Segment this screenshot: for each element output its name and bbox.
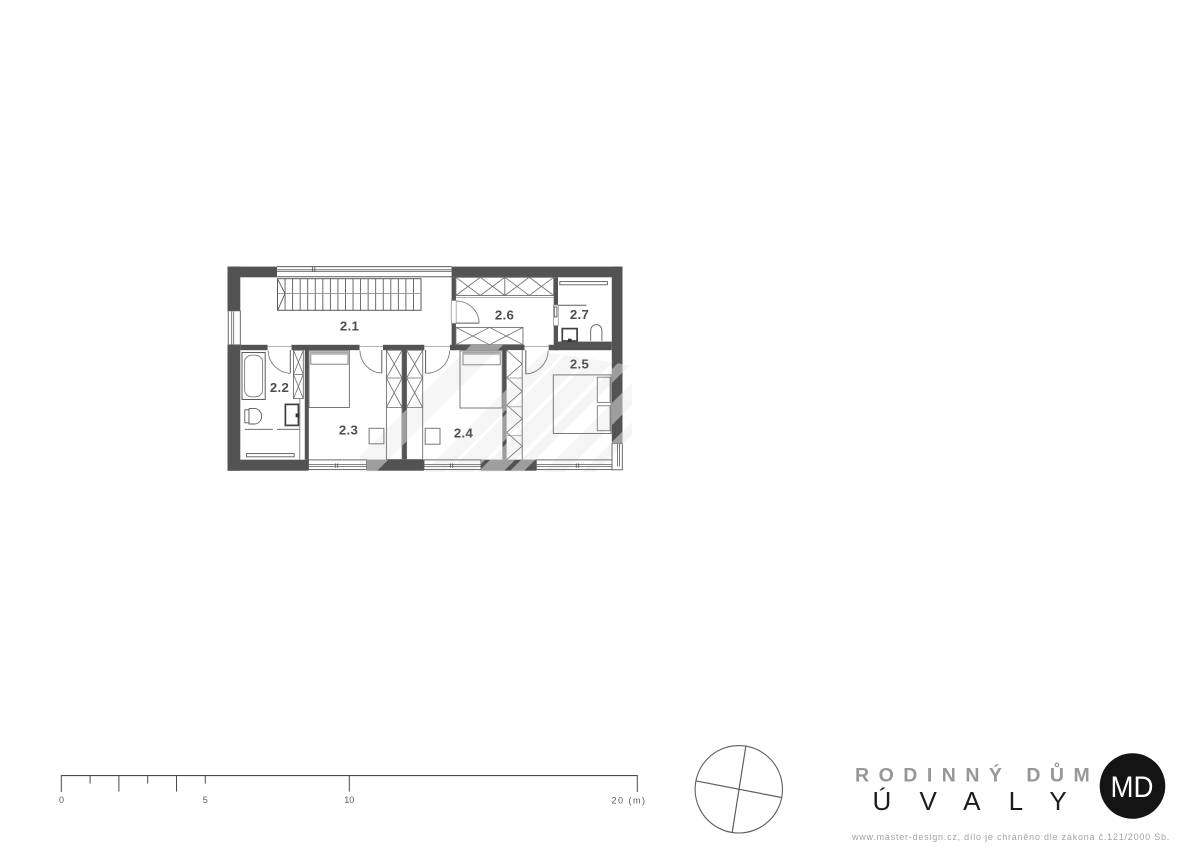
svg-text:2.3: 2.3 — [339, 423, 358, 438]
svg-text:10: 10 — [344, 795, 354, 805]
svg-text:www.master-design.cz, dílo je: www.master-design.cz, dílo je chráněno d… — [851, 832, 1170, 842]
svg-text:20 (m): 20 (m) — [611, 795, 646, 805]
svg-text:5: 5 — [203, 795, 208, 805]
svg-text:0: 0 — [59, 795, 64, 805]
svg-text:2.7: 2.7 — [570, 307, 589, 322]
svg-text:2.6: 2.6 — [495, 308, 514, 323]
svg-text:MD: MD — [1111, 771, 1154, 804]
svg-text:2.1: 2.1 — [340, 319, 359, 334]
svg-text:RODINNÝ DŮM: RODINNÝ DŮM — [855, 761, 1099, 787]
svg-text:2.2: 2.2 — [270, 380, 289, 395]
svg-text:ÚVALY: ÚVALY — [873, 786, 1095, 816]
